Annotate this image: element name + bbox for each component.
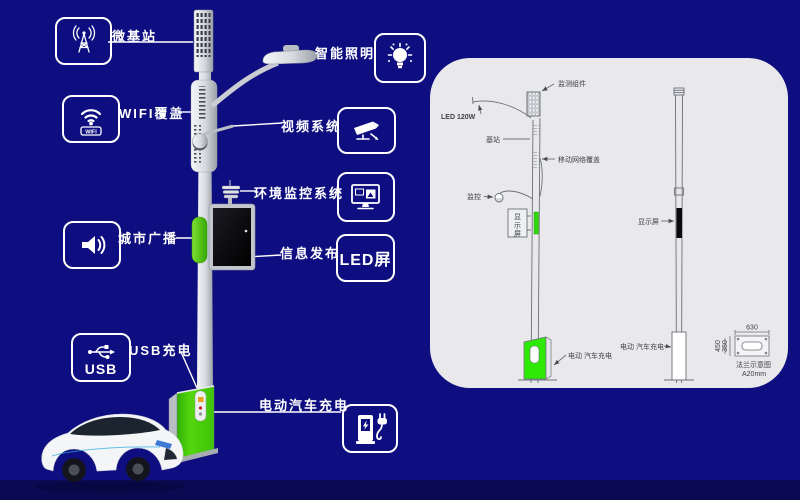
city-broadcast-box [63,221,121,269]
label-flange-title: 法兰示意图 [736,360,771,369]
wifi-label: WIFI覆盖 [119,103,184,122]
label-display-vert-1: 显 [514,213,521,221]
wifi-badge: WIFI [85,129,97,135]
ev-charger-icon [350,411,390,447]
antenna-vents [197,13,211,57]
micro-base-station-label: 微基站 [112,26,157,45]
wifi-icon: WIFI [73,101,109,137]
smart-lighting-label: 智能照明 [315,43,375,62]
technical-drawing-panel: 监测组件 LED 120W 基站 移动网络覆盖 监控 显 示 屏 电动 汽车充电… [430,58,788,388]
label-dim-450: 450 [715,340,722,352]
speaker-icon [75,228,109,262]
led-screen-box: LED屏 [336,234,395,282]
label-mobile-network: 移动网络覆盖 [558,155,600,164]
video-system-label: 视频系统 [281,116,341,135]
label-base-station: 基站 [486,135,500,144]
led-screen [213,208,251,266]
smart-pole-infographic: 微基站 WIFI WIFI覆盖 城市广播 [0,0,800,500]
screen-glint [245,230,248,233]
smart-lighting-box [374,33,426,83]
dome-camera [193,134,208,149]
label-ev-left: 电动 汽车充电 [568,351,612,360]
label-ev-right: 电动 汽车充电 [620,342,664,351]
video-system-box [337,107,396,154]
connector-line [233,123,282,126]
ev-charging-label: 电动汽车充电 [259,395,349,414]
label-flange-spec: A20mm [742,371,766,378]
speaker-unit [192,217,207,263]
environment-sensor [222,180,240,205]
lamp-head [263,50,317,64]
led-screen-box-text: LED屏 [339,246,391,270]
micro-base-station-box [55,17,112,65]
wifi-box: WIFI [62,95,120,143]
usb-box: USB [71,333,131,382]
right-pole-drawing [661,88,694,383]
bulb-icon [383,41,417,75]
usb-badge: USB [85,361,118,377]
label-surveillance: 监控 [467,192,481,201]
technical-drawing: 监测组件 LED 120W 基站 移动网络覆盖 监控 显 示 屏 电动 汽车充电… [430,58,788,388]
env-monitoring-box [337,172,395,222]
lamp-arm [212,63,278,106]
cctv-camera-icon [348,116,386,146]
env-monitoring-label: 环境监控系统 [254,183,344,202]
label-dim-350: 350 [722,340,729,352]
label-display-vert-3: 屏 [514,230,521,238]
flange-diagram [725,330,769,356]
label-dim-630: 630 [746,325,758,332]
label-display-right: 显示屏 [638,218,659,226]
antenna-icon [67,24,101,58]
label-monitor-component: 监测组件 [558,79,586,88]
city-broadcast-label: 城市广播 [118,228,178,247]
label-led-power: LED 120W [441,114,476,121]
usb-port-device [195,391,206,421]
label-display-vert-2: 示 [514,222,521,230]
usb-icon [83,338,119,360]
usb-charging-label: USB充电 [129,340,192,359]
monitor-icon [347,181,385,213]
sleeve-vents-top [197,86,207,120]
info-publish-label: 信息发布 [280,243,340,262]
ev-charging-box [342,404,398,453]
